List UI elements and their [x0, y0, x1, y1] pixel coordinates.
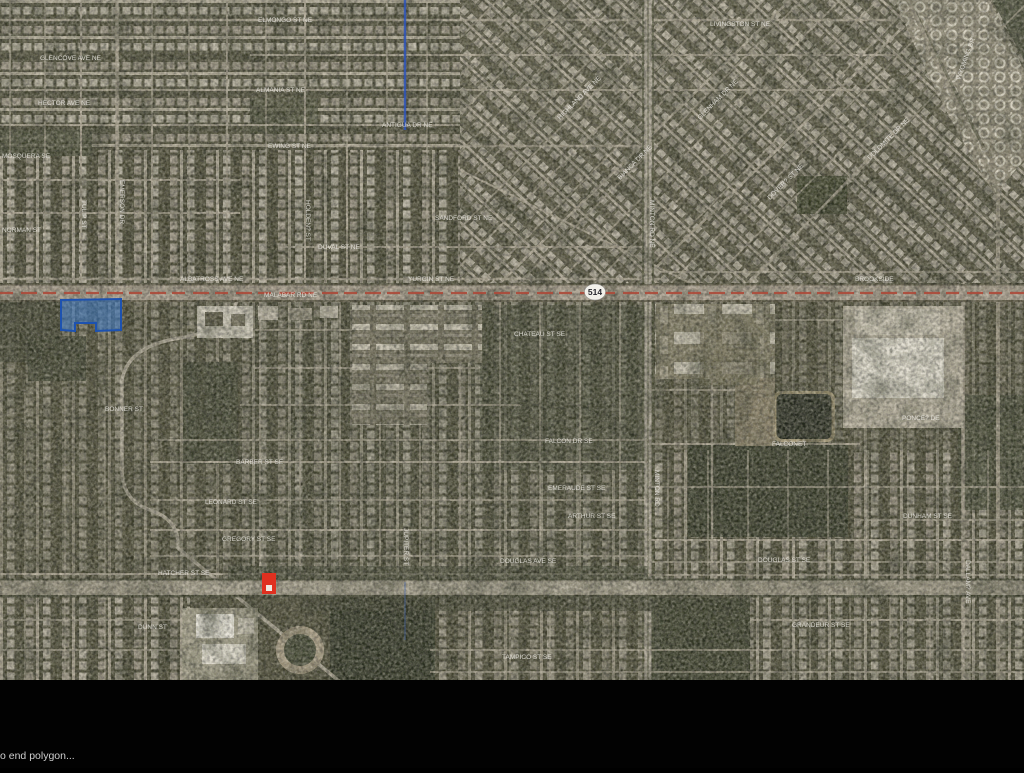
svg-text:514: 514	[588, 287, 602, 297]
svg-text:GREGORY ST SE: GREGORY ST SE	[222, 536, 276, 543]
svg-text:EMERAUDE ST SE: EMERAUDE ST SE	[548, 485, 606, 492]
svg-text:TAMPICO ST SE: TAMPICO ST SE	[502, 654, 552, 661]
svg-text:BARBER ST SE: BARBER ST SE	[236, 459, 284, 466]
svg-text:BONNER ST: BONNER ST	[105, 406, 143, 413]
svg-text:FALCONET: FALCONET	[772, 441, 806, 448]
svg-text:DUVAL ST NE: DUVAL ST NE	[318, 244, 360, 251]
svg-text:DOUGLAS ST SE: DOUGLAS ST SE	[758, 557, 811, 564]
svg-text:MALABAR RD NE: MALABAR RD NE	[264, 292, 318, 299]
svg-text:HATCHER ST SE: HATCHER ST SE	[158, 570, 210, 577]
svg-text:MINTON RD NE: MINTON RD NE	[648, 200, 655, 248]
svg-text:ANTIGUA DR NE: ANTIGUA DR NE	[382, 122, 433, 129]
svg-text:MOSQUERA SE: MOSQUERA SE	[2, 153, 51, 160]
svg-text:LEONARD ST SE: LEONARD ST SE	[205, 499, 258, 506]
svg-text:ELMONGO ST NE: ELMONGO ST NE	[258, 17, 313, 24]
svg-text:SANDFORD ST NE: SANDFORD ST NE	[435, 215, 493, 222]
svg-text:EMERSON DR: EMERSON DR	[118, 180, 125, 224]
svg-text:TULIP ST: TULIP ST	[80, 200, 87, 228]
svg-text:PONCE? DE: PONCE? DE	[902, 415, 940, 422]
svg-text:HOLDEN? ST: HOLDEN? ST	[304, 200, 311, 241]
svg-text:ALBATROSS AVE NE: ALBATROSS AVE NE	[180, 276, 244, 283]
svg-text:CHATEAU ST SE: CHATEAU ST SE	[514, 331, 566, 338]
svg-text:DALLAM? AVE: DALLAM? AVE	[964, 560, 971, 604]
svg-text:BROOKSIDE: BROOKSIDE	[855, 276, 894, 283]
svg-text:DUNN ST: DUNN ST	[138, 624, 167, 631]
svg-text:FALCON DR SE: FALCON DR SE	[545, 438, 593, 445]
svg-text:HECTOR AVE NE: HECTOR AVE NE	[38, 100, 91, 107]
svg-text:GRANDEUR ST SE: GRANDEUR ST SE	[792, 622, 850, 629]
svg-text:EWING ST NE: EWING ST NE	[268, 143, 312, 150]
svg-text:DOUGLAS AVE SE: DOUGLAS AVE SE	[500, 558, 557, 565]
svg-text:DUNHAM ST SE: DUNHAM ST SE	[903, 513, 953, 520]
svg-text:ALMANIA ST NE: ALMANIA ST NE	[256, 87, 306, 94]
svg-text:MINTON RD: MINTON RD	[653, 470, 660, 507]
svg-text:NORMAN ST: NORMAN ST	[2, 227, 41, 234]
svg-text:JUPITER ST: JUPITER ST	[402, 528, 409, 565]
svg-text:GLENCOVE AVE NE: GLENCOVE AVE NE	[40, 55, 102, 62]
svg-text:LIVINGSTON ST NE: LIVINGSTON ST NE	[710, 21, 771, 28]
svg-text:ARTHUR ST SE: ARTHUR ST SE	[568, 513, 616, 520]
svg-text:YURGIN ST NE: YURGIN ST NE	[408, 276, 455, 283]
svg-text:o end polygon...: o end polygon...	[0, 750, 75, 762]
